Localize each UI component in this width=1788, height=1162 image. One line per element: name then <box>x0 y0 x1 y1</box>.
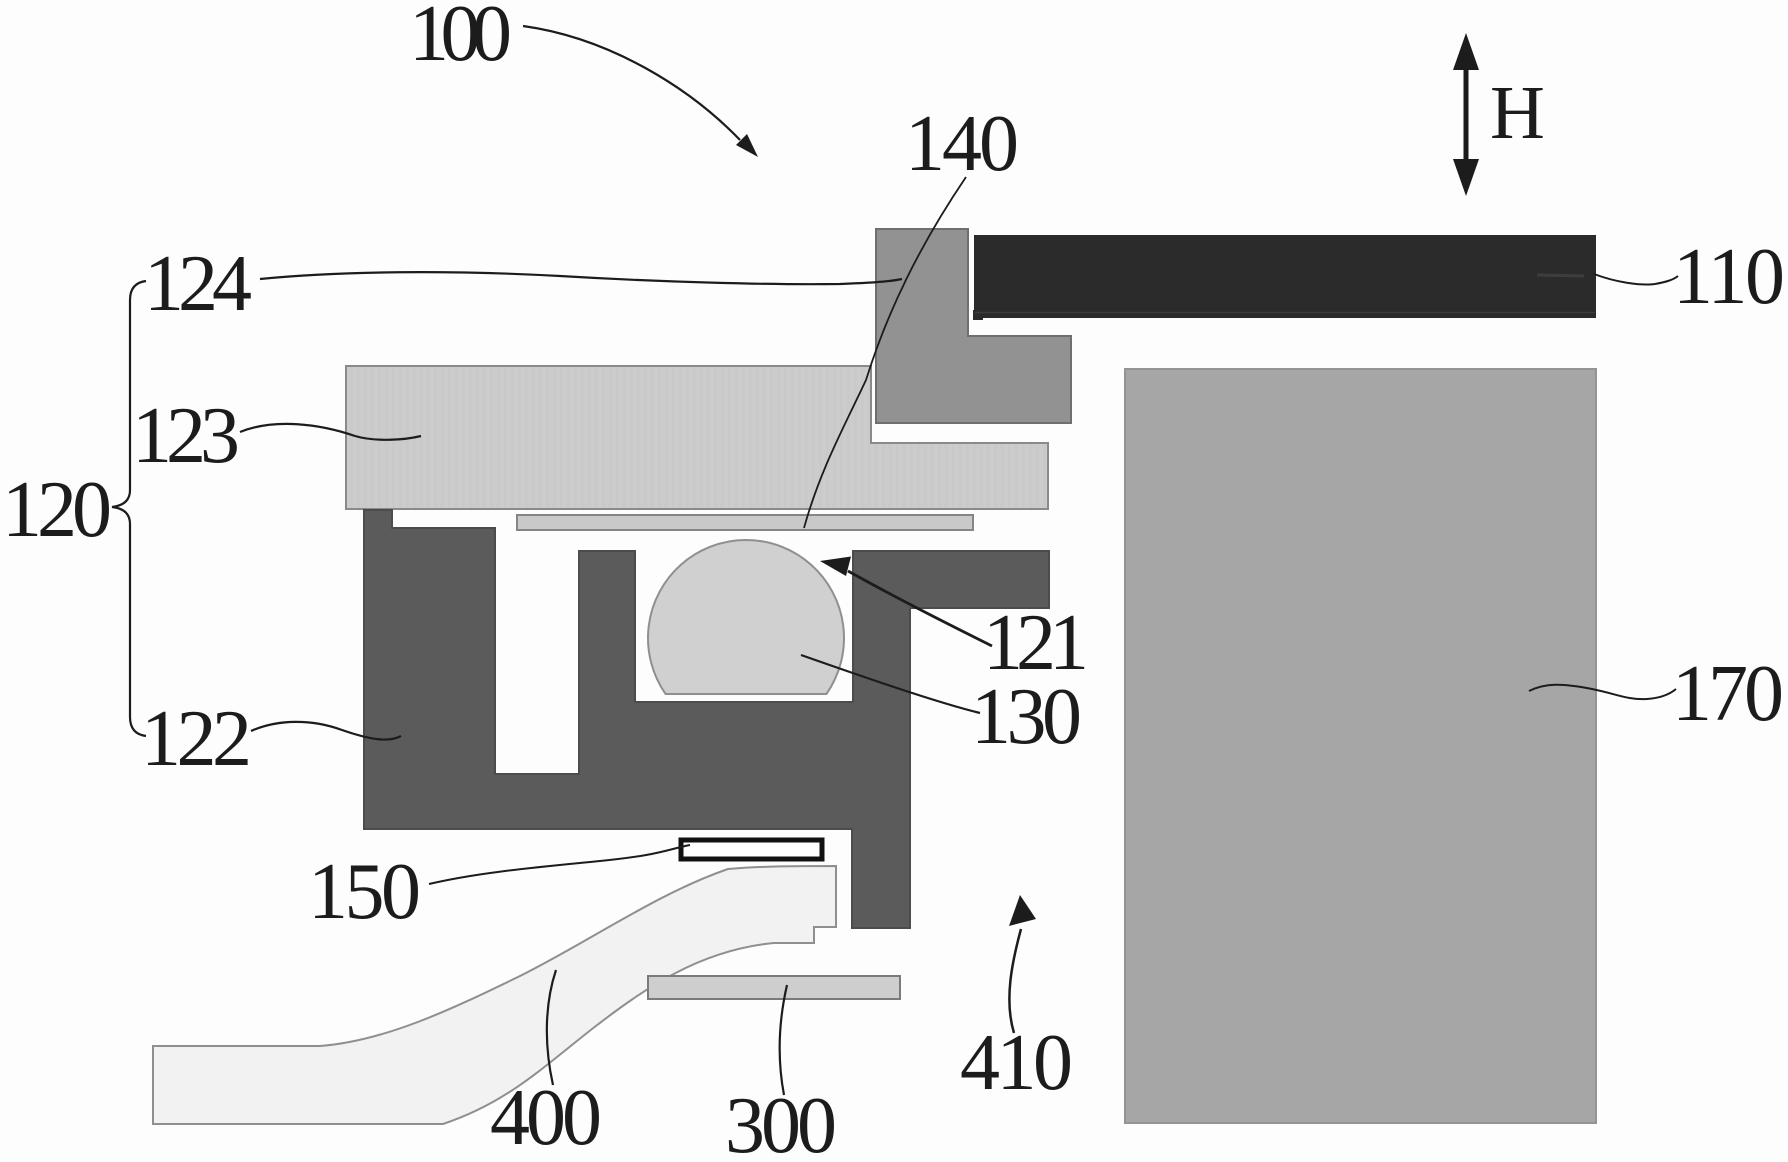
svg-text:H: H <box>1490 71 1545 155</box>
svg-text:122: 122 <box>141 695 252 783</box>
svg-text:170: 170 <box>1672 650 1784 738</box>
svg-text:300: 300 <box>725 1082 837 1162</box>
svg-text:130: 130 <box>971 673 1082 761</box>
svg-text:410: 410 <box>960 1019 1073 1107</box>
svg-text:110: 110 <box>1673 233 1785 321</box>
svg-text:100: 100 <box>409 0 512 78</box>
svg-text:140: 140 <box>905 100 1019 188</box>
svg-text:120: 120 <box>2 466 112 554</box>
svg-text:124: 124 <box>144 240 252 328</box>
svg-text:123: 123 <box>132 392 240 480</box>
svg-text:150: 150 <box>308 848 421 936</box>
svg-text:400: 400 <box>490 1074 602 1162</box>
